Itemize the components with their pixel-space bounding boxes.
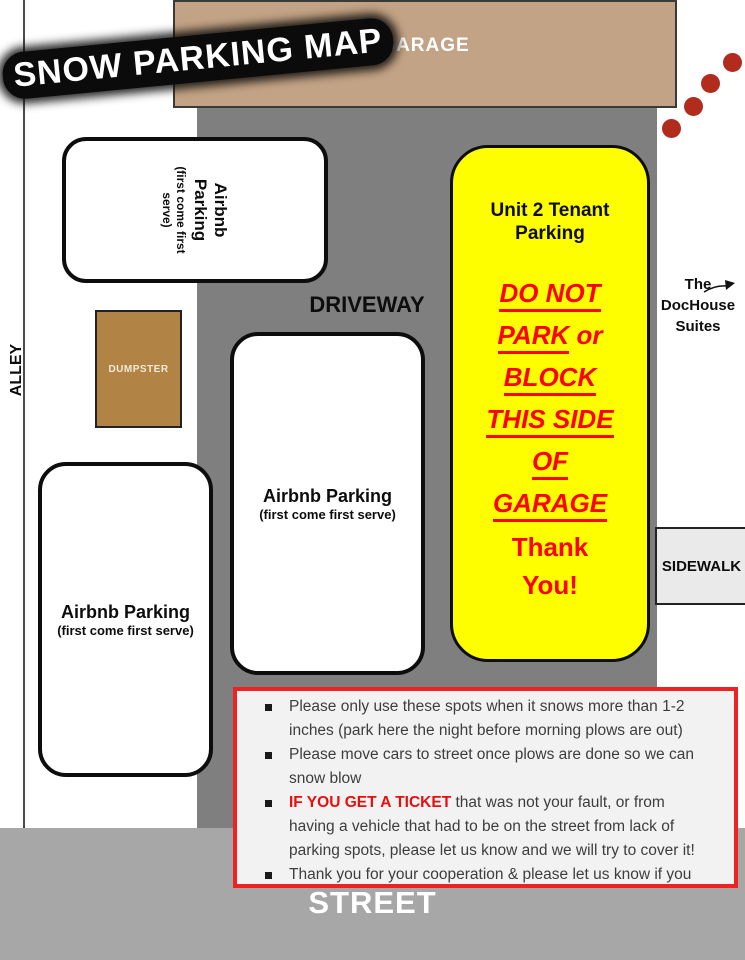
airbnb-parking-note: (first come first serve) [160, 154, 188, 266]
rule-text: that was not your fault, or from [451, 794, 665, 811]
rule-text: having a vehicle that had to be on the s… [289, 815, 734, 839]
airbnb-parking-title: Airbnb Parking [61, 602, 190, 623]
snow-parking-map: GARAGE DRIVEWAY ALLEY STREET DUMPSTER Ai… [0, 0, 745, 960]
warning-line: OF [453, 440, 647, 482]
rule-emphasis: IF YOU GET A TICKET [289, 794, 451, 811]
warning-text: DO NOT [499, 278, 600, 312]
thank-you-line1: Thank [453, 528, 647, 566]
thank-you-line2: You! [453, 566, 647, 604]
rule-item: Thank you for your cooperation & please … [237, 863, 734, 888]
airbnb-parking-spot-bottom: Airbnb Parking (first come first serve) [38, 462, 213, 777]
airbnb-parking-title: Parking [190, 135, 210, 285]
warning-text: PARK [498, 320, 570, 354]
warning-text: GARAGE [493, 488, 607, 522]
unit2-tenant-parking-spot: Unit 2 Tenant Parking DO NOT PARK or BLO… [450, 145, 650, 662]
red-dot [723, 53, 742, 72]
rule-item: Please move cars to street once plows ar… [237, 743, 734, 791]
warning-text: or [569, 320, 602, 350]
rule-text: inches (park here the night before morni… [289, 719, 734, 743]
warning-line: PARK or [453, 314, 647, 356]
rule-text: parking spots, please let us know and we… [289, 839, 734, 863]
warning-text: BLOCK [504, 362, 596, 396]
dochouse-line2: DocHouse [652, 295, 744, 316]
rule-text: have any questions or need anything else… [289, 887, 734, 888]
street-label: STREET [0, 886, 745, 920]
warning-line: THIS SIDE [453, 398, 647, 440]
dumpster-label: DUMPSTER [108, 364, 168, 375]
sidewalk-area: SIDEWALK [655, 527, 745, 605]
warning-text: OF [532, 446, 568, 480]
alley-label: ALLEY [9, 340, 25, 400]
do-not-park-warning: DO NOT PARK or BLOCK THIS SIDE OF GARAGE [453, 272, 647, 524]
warning-line: DO NOT [453, 272, 647, 314]
dumpster-area: DUMPSTER [95, 310, 182, 428]
sidewalk-label: SIDEWALK [662, 558, 741, 575]
warning-line: GARAGE [453, 482, 647, 524]
airbnb-parking-spot-top: Airbnb Parking (first come first serve) [62, 137, 328, 283]
red-dot [701, 74, 720, 93]
rule-text: Please move cars to street once plows ar… [289, 746, 694, 763]
red-dot [684, 97, 703, 116]
rule-text: Please only use these spots when it snow… [289, 698, 684, 715]
rule-text: Thank you for your cooperation & please … [289, 866, 691, 883]
unit2-header: Unit 2 Tenant Parking [453, 199, 647, 245]
rule-item: Please only use these spots when it snow… [237, 695, 734, 743]
alley-boundary-line [23, 0, 25, 829]
unit2-header-line1: Unit 2 Tenant [453, 199, 647, 222]
airbnb-parking-title: Airbnb [210, 135, 230, 285]
red-dot [662, 119, 681, 138]
parking-rules-list: Please only use these spots when it snow… [237, 695, 734, 888]
airbnb-parking-note: (first come first serve) [259, 507, 396, 522]
dochouse-line3: Suites [652, 316, 744, 337]
warning-text: THIS SIDE [486, 404, 613, 438]
rule-text: snow blow [289, 767, 734, 791]
warning-line: BLOCK [453, 356, 647, 398]
unit2-header-line2: Parking [453, 222, 647, 245]
rule-item: IF YOU GET A TICKET that was not your fa… [237, 791, 734, 863]
driveway-label: DRIVEWAY [297, 292, 437, 318]
airbnb-parking-top-text: Airbnb Parking (first come first serve) [160, 135, 230, 285]
airbnb-parking-spot-middle: Airbnb Parking (first come first serve) [230, 332, 425, 675]
parking-rules-box: Please only use these spots when it snow… [233, 687, 738, 888]
thank-you-text: Thank You! [453, 528, 647, 604]
pointer-arrow-icon [702, 279, 736, 295]
airbnb-parking-note: (first come first serve) [57, 623, 194, 638]
airbnb-parking-title: Airbnb Parking [263, 486, 392, 507]
